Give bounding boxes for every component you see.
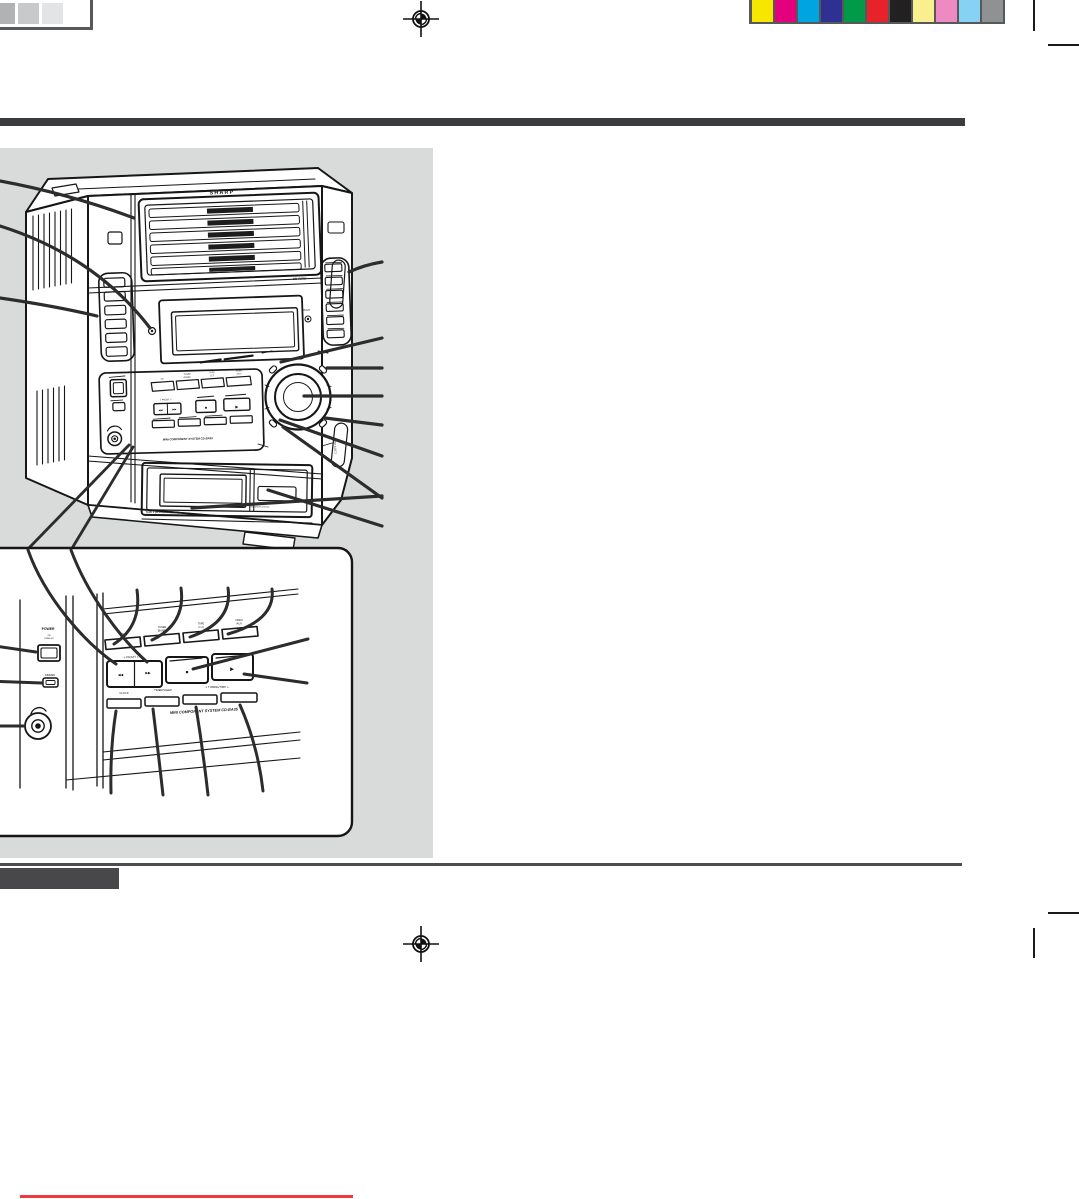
svg-text:TAPE: TAPE (209, 371, 215, 374)
inset-detail-box: POWER ON/ STAND-BY DIMMER (0, 548, 352, 836)
crop-mark-bottom-horizontal (1048, 912, 1079, 914)
color-calibration-bar (749, 0, 1005, 24)
svg-text:/AUX: /AUX (236, 623, 242, 626)
calibration-swatch (890, 0, 911, 22)
svg-text:(BAND): (BAND) (183, 376, 191, 379)
svg-text:TUNER: TUNER (183, 374, 191, 376)
svg-text:(1 2): (1 2) (198, 626, 203, 629)
svg-text:◀◀: ◀◀ (118, 673, 124, 677)
svg-text:(1 2): (1 2) (210, 375, 215, 377)
multi-jog-dot (307, 318, 309, 320)
manual-proof-page: PUSH EJECT SHARP (0, 0, 1079, 1199)
power-label: POWER (42, 627, 55, 631)
section-heading-tab (0, 868, 119, 889)
calibration-swatch (752, 0, 773, 22)
svg-text:ON/: ON/ (47, 635, 51, 637)
calibration-swatch (844, 0, 865, 22)
grayscale-calibration-strip (0, 0, 93, 30)
figure-panel: PUSH EJECT SHARP (0, 148, 433, 858)
multi-label: MULTI (303, 309, 310, 312)
section-rule (0, 863, 962, 866)
calibration-swatch (66, 3, 87, 24)
tuning-time-label: ∨ TUNING/TIME ∧ (205, 685, 229, 689)
calibration-swatch (982, 0, 1003, 22)
timer-indicator-dot (151, 330, 153, 332)
calibration-swatch (936, 0, 957, 22)
registration-mark-bottom (402, 925, 440, 963)
svg-text:VIDEO: VIDEO (236, 370, 243, 372)
footer-red-box-edge (20, 1195, 353, 1198)
calibration-swatch (913, 0, 934, 22)
calibration-swatch (42, 3, 63, 24)
registration-mark-top (402, 0, 440, 38)
dimmer-label: DIMMER (45, 674, 55, 677)
cdrw-label: CD-R/RW (293, 277, 307, 281)
calibration-swatch (821, 0, 842, 22)
calibration-swatch (798, 0, 819, 22)
record-playback-label: RECORD/PLAYBACK (251, 505, 270, 508)
calibration-swatch (867, 0, 888, 22)
svg-text:/AUX: /AUX (237, 372, 243, 375)
page-header-bar (0, 118, 965, 126)
calibration-swatch (959, 0, 980, 22)
crop-mark-top-vertical (1033, 0, 1035, 31)
crop-mark-top-horizontal (1048, 44, 1079, 46)
svg-text:■: ■ (205, 406, 207, 410)
calibration-swatch (18, 3, 39, 24)
svg-text:▶: ▶ (230, 667, 234, 673)
tape-door-label: TAPE 1 (PLAYBACK/EJECT) (146, 511, 180, 514)
stereo-unit-illustration: PUSH EJECT SHARP (0, 148, 433, 858)
clock-label: CLOCK (119, 691, 128, 695)
crop-mark-bottom-vertical (1033, 928, 1035, 958)
calibration-swatch (0, 3, 15, 24)
svg-text:∨ PRESET ∧: ∨ PRESET ∧ (160, 398, 172, 401)
svg-text:■: ■ (186, 670, 189, 675)
svg-text:▶▶: ▶▶ (145, 671, 151, 675)
svg-text:∨ PRESET ∧: ∨ PRESET ∧ (123, 655, 139, 660)
svg-text:CD: CD (161, 378, 165, 380)
timer-sleep-label: TIMER/SLEEP (154, 688, 172, 692)
calibration-swatch (775, 0, 796, 22)
svg-text:STAND-BY: STAND-BY (44, 637, 54, 640)
